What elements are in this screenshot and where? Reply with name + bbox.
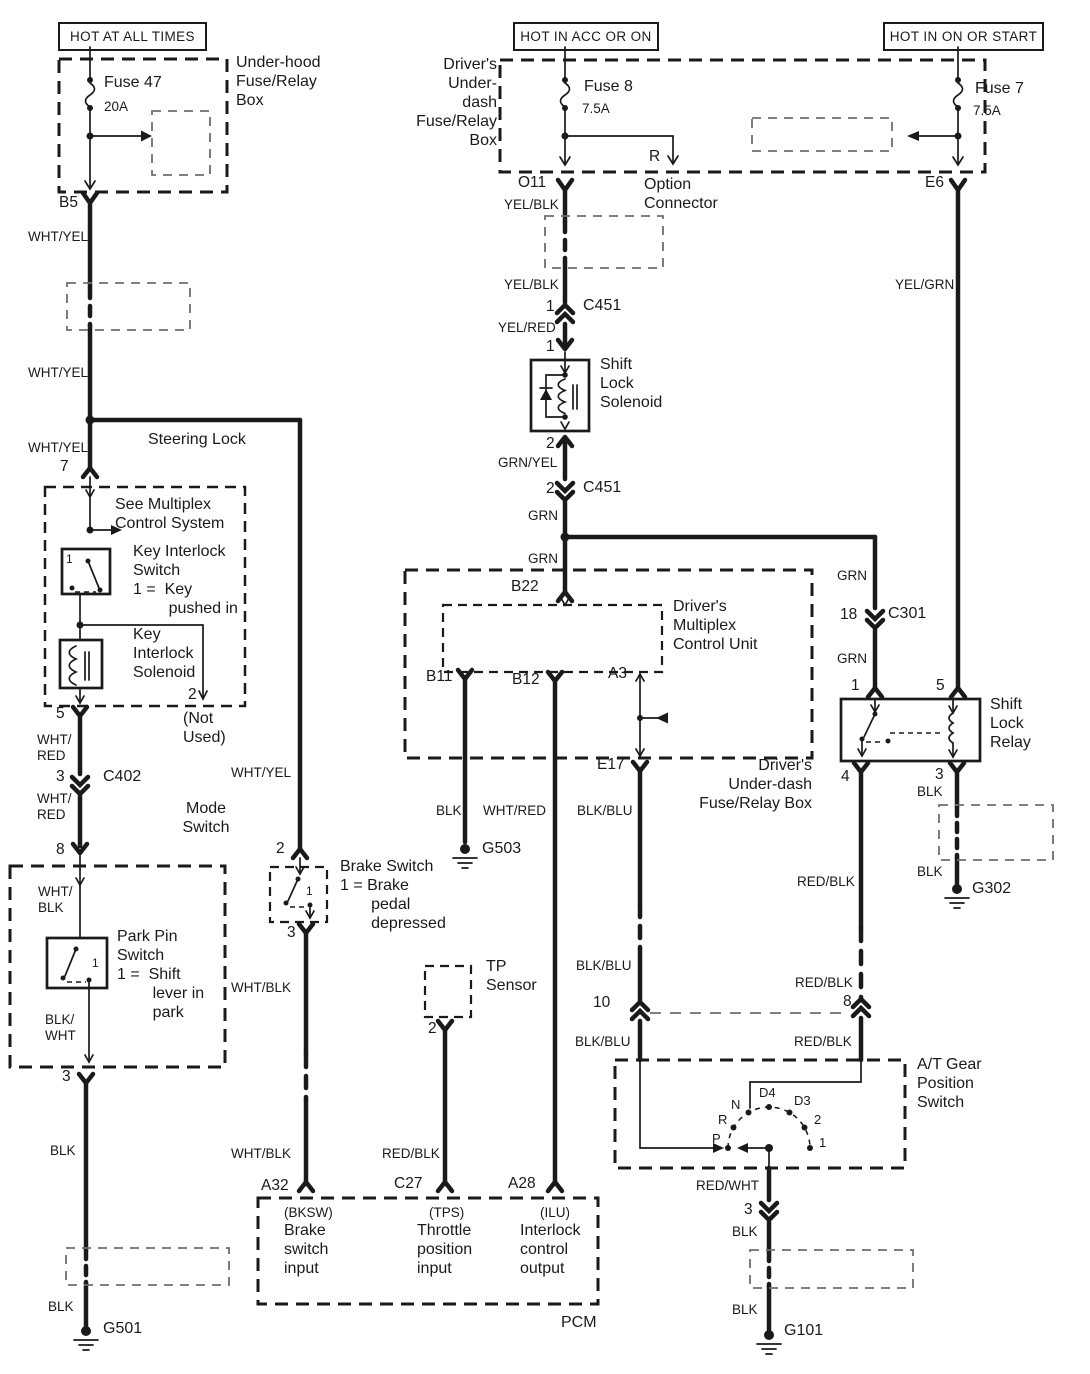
pin-2-not-used: 2 [188, 686, 197, 704]
pin-3-gear: 3 [744, 1201, 753, 1219]
header-left-text: HOT AT ALL TIMES [70, 29, 195, 44]
ground-g302: G302 [972, 880, 1011, 899]
tp-sensor-label: TP Sensor [486, 958, 537, 996]
fuse8-rating: 7.5A [582, 101, 610, 117]
pin-3-parkpin: 3 [62, 1068, 71, 1086]
wire-wht-yel-brake: WHT/YEL [231, 765, 291, 781]
wire-wht-blk-parkpin: WHT/ BLK [38, 884, 73, 916]
pin-7: 7 [60, 458, 69, 476]
connector-c451-1: C451 [583, 297, 621, 316]
wire-blk-blu-1: BLK/BLU [577, 803, 633, 819]
header-hot-in-on-or-start: HOT IN ON OR START [883, 22, 1044, 51]
connector-c402: C402 [103, 768, 141, 787]
wire-wht-red-1: WHT/ RED [37, 732, 72, 764]
not-used-label: (Not Used) [183, 710, 226, 748]
wire-yel-blk-1: YEL/BLK [504, 197, 559, 213]
pin-4-relay: 4 [841, 768, 850, 786]
underdash-top-label: Driver's Under-dash Fuse/Relay Box [415, 56, 497, 150]
gear-pos-d3: D3 [794, 1093, 811, 1108]
pin-5: 5 [56, 705, 65, 723]
gear-pos-1: 1 [819, 1135, 826, 1150]
wire-red-blk-3: RED/BLK [794, 1034, 852, 1050]
wire-blk-g302-1: BLK [917, 784, 943, 800]
pin-b12: B12 [512, 671, 540, 689]
pin-1-relay: 1 [851, 677, 860, 695]
pcm-ilu-desc: Interlock control output [520, 1222, 580, 1279]
pcm-bksw-desc: Brake switch input [284, 1222, 328, 1279]
pin-b11: B11 [426, 668, 452, 686]
key-interlock-switch-label: Key Interlock Switch 1 = Key pushed in [133, 543, 238, 619]
shift-lock-relay-label: Shift Lock Relay [990, 696, 1031, 753]
connector-c301: C301 [888, 605, 926, 624]
wire-blk-b11: BLK [436, 803, 462, 819]
multiplex-unit-art [405, 570, 850, 1191]
pin-10: 10 [593, 994, 610, 1012]
fuse7-rating: 7.5A [973, 103, 1001, 119]
wire-grn-2: GRN [528, 551, 558, 567]
underhood-fuse-box-art [59, 47, 227, 192]
wire-wht-red-b12: WHT/RED [483, 803, 546, 819]
pin-b22: B22 [511, 578, 539, 596]
ground-g101: G101 [784, 1322, 823, 1341]
pin-1-c451: 1 [546, 298, 555, 316]
pin-8: 8 [56, 841, 65, 859]
wiring-diagram-page: HOT AT ALL TIMES HOT IN ACC OR ON HOT IN… [0, 0, 1090, 1374]
pcm-ilu-tag: (ILU) [540, 1205, 570, 1221]
shift-lock-relay-art [841, 180, 1053, 1060]
wire-blk-g501-2: BLK [48, 1299, 74, 1315]
gear-pos-r: R [718, 1112, 727, 1127]
fuse7-label: Fuse 7 [975, 80, 1024, 99]
ground-g501: G501 [103, 1320, 142, 1339]
wire-blk-g302-2: BLK [917, 864, 943, 880]
pin-5-relay: 5 [936, 677, 945, 695]
connector-c451-2: C451 [583, 479, 621, 498]
pcm-bksw-tag: (BKSW) [284, 1205, 333, 1221]
pin-2-tp: 2 [428, 1020, 437, 1038]
wire-red-blk-1: RED/BLK [797, 874, 855, 890]
gear-pos-p: P [712, 1131, 721, 1146]
park-pin-pos-1: 1 [92, 956, 99, 970]
wire-grn-yel: GRN/YEL [498, 455, 557, 471]
mode-switch-label: Mode Switch [170, 800, 242, 838]
pin-3-brake: 3 [287, 924, 296, 942]
pin-c27: C27 [394, 1175, 422, 1193]
park-pin-switch-label: Park Pin Switch 1 = Shift lever in park [117, 928, 204, 1022]
brake-switch-art [270, 849, 327, 1191]
pin-3-c402: 3 [56, 768, 65, 786]
header-hot-at-all-times: HOT AT ALL TIMES [58, 22, 207, 51]
wire-yel-red: YEL/RED [498, 320, 556, 336]
pin-3-relay: 3 [935, 766, 944, 784]
pin-2-brake: 2 [276, 840, 285, 858]
wire-wht-blk-2: WHT/BLK [231, 1146, 291, 1162]
wire-blk-wht: BLK/ WHT [45, 1012, 76, 1044]
pin-r: R [649, 148, 660, 166]
wire-red-blk-tp: RED/BLK [382, 1146, 440, 1162]
wire-blk-g101-1: BLK [732, 1224, 758, 1240]
wire-blk-blu-2: BLK/BLU [576, 958, 632, 974]
pin-a28: A28 [508, 1175, 536, 1193]
wire-wht-blk-1: WHT/BLK [231, 980, 291, 996]
wire-grn-4: GRN [837, 651, 867, 667]
header-middle-text: HOT IN ACC OR ON [520, 29, 651, 44]
wire-red-blk-2: RED/BLK [795, 975, 853, 991]
wire-red-wht: RED/WHT [696, 1178, 759, 1194]
pcm-tps-desc: Throttle position input [417, 1222, 472, 1279]
ground-g503: G503 [482, 840, 521, 859]
pin-2-solenoid: 2 [546, 435, 555, 453]
key-switch-pos-1: 1 [66, 552, 73, 566]
wire-yel-blk-2: YEL/BLK [504, 277, 559, 293]
pcm-label: PCM [561, 1314, 597, 1333]
shift-lock-solenoid-art [531, 180, 875, 605]
fuse47-rating: 20A [104, 99, 128, 115]
pin-o11: O11 [518, 174, 546, 192]
shift-lock-solenoid-label: Shift Lock Solenoid [600, 356, 662, 413]
gear-pos-n: N [731, 1097, 740, 1112]
wire-grn-3: GRN [837, 568, 867, 584]
gear-pos-2: 2 [814, 1112, 821, 1127]
see-multiplex-note: See Multiplex Control System [115, 496, 224, 534]
header-hot-in-acc-or-on: HOT IN ACC OR ON [513, 22, 659, 51]
wire-blk-g501-1: BLK [50, 1143, 76, 1159]
underdash-fuse-box-art [500, 47, 985, 172]
fuse8-label: Fuse 8 [584, 78, 633, 97]
wire-wht-yel-2: WHT/YEL [28, 365, 88, 381]
pin-8-redblk: 8 [843, 993, 852, 1011]
multiplex-unit-label: Driver's Multiplex Control Unit [673, 598, 757, 655]
pin-1-solenoid: 1 [546, 338, 555, 356]
option-connector-label: Option Connector [644, 176, 718, 214]
pin-18: 18 [840, 606, 857, 624]
pcm-tps-tag: (TPS) [429, 1205, 464, 1221]
pin-b5: B5 [59, 194, 78, 212]
pin-2-c451: 2 [546, 480, 555, 498]
brake-switch-pos-1: 1 [306, 884, 313, 898]
wire-grn-1: GRN [528, 508, 558, 524]
pin-a3: A3 [608, 665, 627, 683]
wire-wht-yel-1: WHT/YEL [28, 229, 88, 245]
at-gear-switch-label: A/T Gear Position Switch [917, 1056, 982, 1113]
wire-wht-yel-3: WHT/YEL [28, 440, 88, 456]
key-interlock-solenoid-label: Key Interlock Solenoid [133, 626, 195, 683]
header-right-text: HOT IN ON OR START [890, 29, 1037, 44]
wire-wht-red-2: WHT/ RED [37, 791, 72, 823]
brake-switch-label: Brake Switch 1 = Brake pedal depressed [340, 858, 446, 934]
pin-e6: E6 [925, 174, 944, 192]
at-gear-switch-art [615, 1060, 913, 1354]
gear-pos-d4: D4 [759, 1085, 776, 1100]
fuse47-label: Fuse 47 [104, 74, 162, 93]
steering-lock-label: Steering Lock [148, 431, 246, 450]
pin-a32: A32 [261, 1177, 289, 1195]
wire-blk-g101-2: BLK [732, 1302, 758, 1318]
wire-yel-grn: YEL/GRN [895, 277, 954, 293]
underhood-box-label: Under-hood Fuse/Relay Box [236, 54, 321, 111]
wire-blk-blu-3: BLK/BLU [575, 1034, 631, 1050]
underdash-mid-label: Driver's Under-dash Fuse/Relay Box [612, 757, 812, 814]
